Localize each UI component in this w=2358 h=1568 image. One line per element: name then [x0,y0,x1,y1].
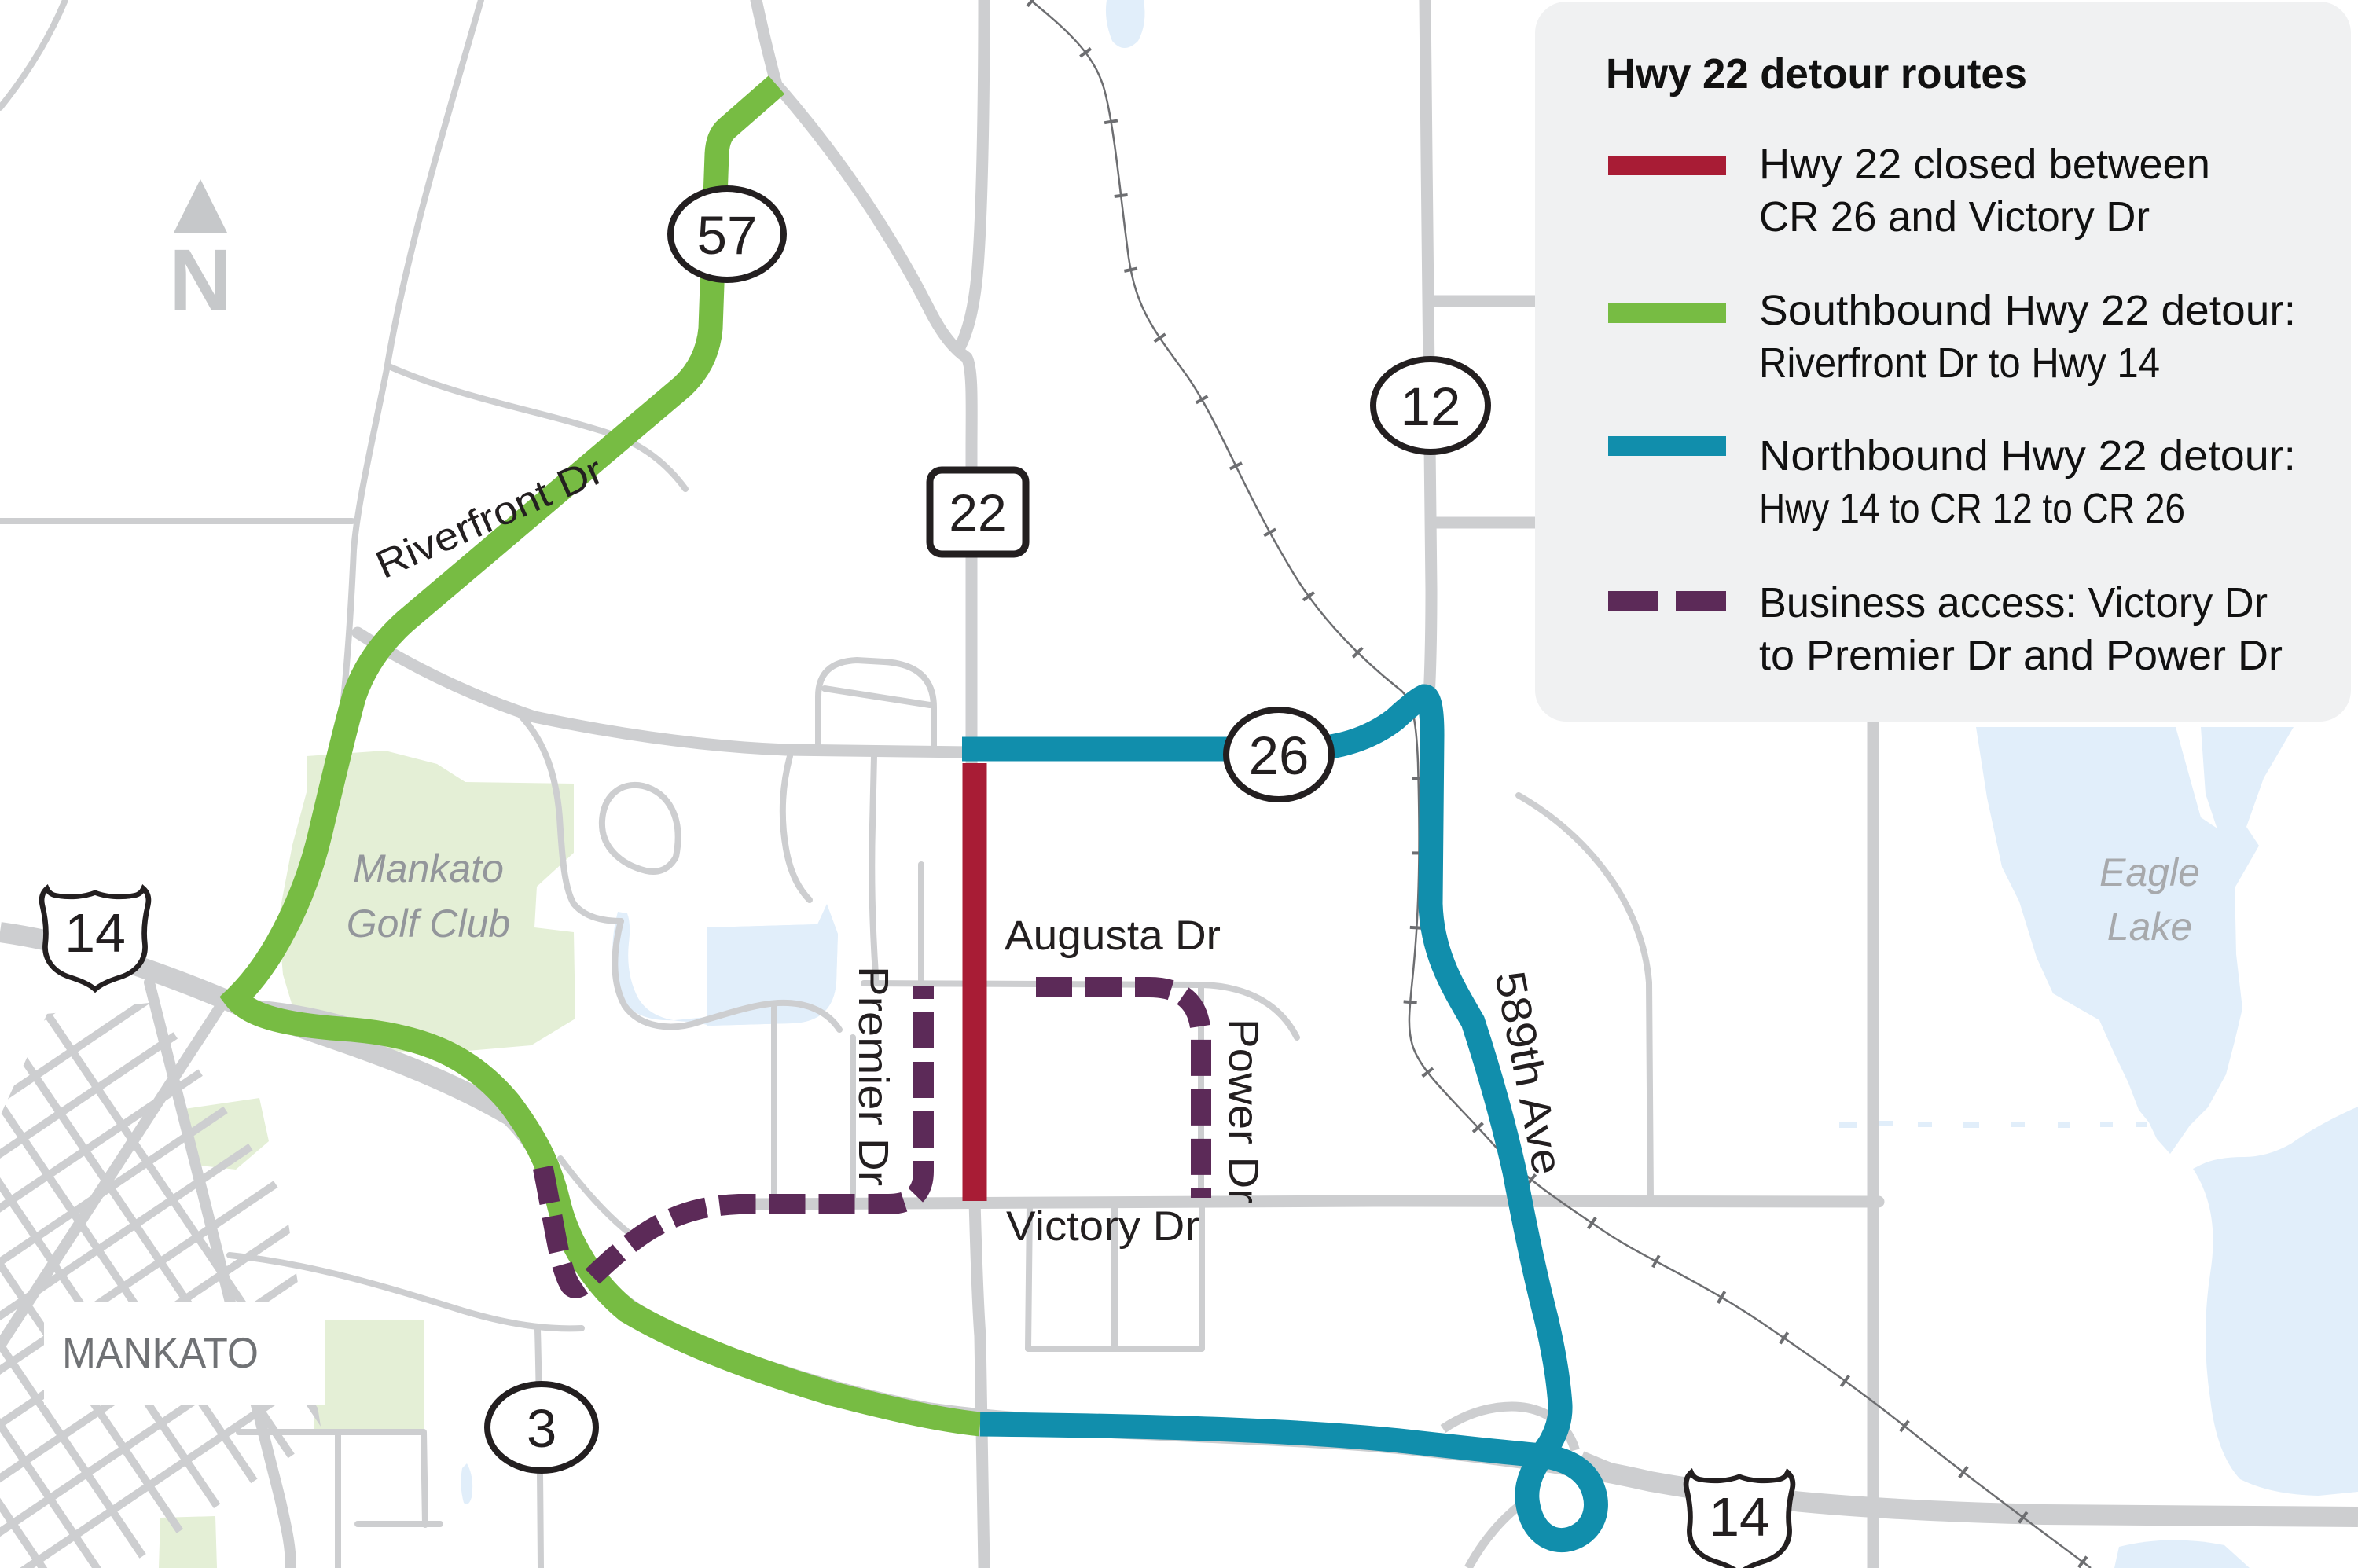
svg-text:Riverfront Dr to Hwy 14: Riverfront Dr to Hwy 14 [1759,340,2160,387]
svg-text:Northbound Hwy 22 detour:: Northbound Hwy 22 detour: [1759,432,2296,479]
svg-text:22: 22 [949,483,1006,542]
svg-text:Mankato: Mankato [353,846,504,890]
svg-text:12: 12 [1401,376,1461,437]
svg-text:to Premier Dr and Power Dr: to Premier Dr and Power Dr [1759,632,2283,679]
svg-text:Power Dr: Power Dr [1220,1019,1267,1203]
svg-text:26: 26 [1249,725,1309,786]
svg-text:Business access: Victory Dr: Business access: Victory Dr [1759,579,2268,626]
svg-text:N: N [169,232,231,329]
svg-text:Eagle: Eagle [2099,850,2200,894]
svg-text:Hwy 22 closed between: Hwy 22 closed between [1759,141,2210,188]
svg-text:3: 3 [527,1398,556,1459]
svg-text:MANKATO: MANKATO [62,1328,259,1377]
svg-text:Augusta Dr: Augusta Dr [1005,913,1221,959]
svg-text:Lake: Lake [2107,905,2192,949]
svg-text:CR 26 and Victory Dr: CR 26 and Victory Dr [1759,193,2150,241]
svg-text:57: 57 [697,205,758,266]
svg-text:Golf Club: Golf Club [347,902,510,946]
svg-text:Hwy 22 detour routes: Hwy 22 detour routes [1606,50,2027,97]
svg-text:Victory Dr: Victory Dr [1006,1203,1199,1250]
svg-text:Premier Dr: Premier Dr [850,966,897,1186]
svg-text:14: 14 [1709,1486,1770,1548]
svg-text:14: 14 [64,902,126,964]
svg-text:Hwy 14 to CR 12 to CR 26: Hwy 14 to CR 12 to CR 26 [1759,485,2185,532]
svg-text:Southbound Hwy 22 detour:: Southbound Hwy 22 detour: [1759,287,2296,334]
